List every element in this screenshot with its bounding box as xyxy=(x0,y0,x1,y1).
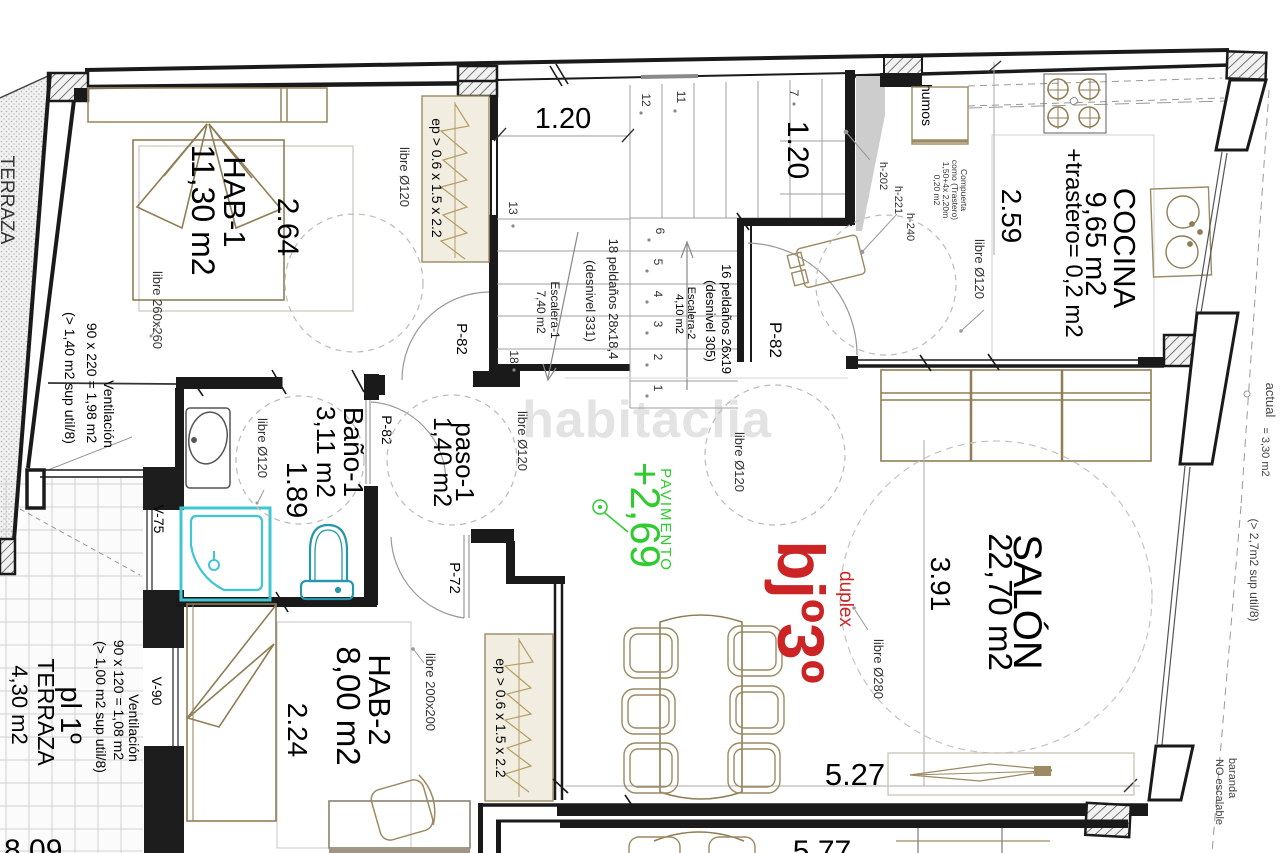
svg-text:Escalera-2: Escalera-2 xyxy=(685,287,697,340)
svg-text:5.77: 5.77 xyxy=(793,835,851,853)
svg-text:4,10 m2: 4,10 m2 xyxy=(673,294,685,334)
svg-text:TERRAZA: TERRAZA xyxy=(33,658,59,766)
svg-text:13: 13 xyxy=(506,201,520,215)
svg-text:8,09: 8,09 xyxy=(4,834,62,853)
svg-text:1: 1 xyxy=(651,385,665,392)
svg-text:libre Ø120: libre Ø120 xyxy=(397,147,412,207)
svg-text:P-82: P-82 xyxy=(766,322,785,358)
svg-text:libre Ø280: libre Ø280 xyxy=(871,639,886,699)
svg-text:1.20: 1.20 xyxy=(535,103,591,135)
svg-text:(> 1,00 m2 sup util/8): (> 1,00 m2 sup util/8) xyxy=(93,641,109,773)
svg-text:libre 200x200: libre 200x200 xyxy=(423,653,438,731)
svg-text:h-240: h-240 xyxy=(904,213,916,241)
svg-text:P-82: P-82 xyxy=(453,323,470,355)
svg-text:5: 5 xyxy=(651,259,665,266)
svg-text:HAB-1: HAB-1 xyxy=(217,156,252,247)
svg-text:4: 4 xyxy=(651,291,665,298)
svg-text:libre 260x260: libre 260x260 xyxy=(150,271,165,349)
svg-text:humos: humos xyxy=(919,84,935,126)
svg-text:h-202: h-202 xyxy=(877,162,889,190)
svg-text:3.91: 3.91 xyxy=(925,557,956,612)
svg-text:duplex: duplex xyxy=(835,571,856,627)
svg-text:6: 6 xyxy=(653,228,667,235)
svg-text:5.27: 5.27 xyxy=(825,757,885,792)
svg-text:90 x 220 = 1,98 m2: 90 x 220 = 1,98 m2 xyxy=(84,323,100,443)
svg-text:libre Ø120: libre Ø120 xyxy=(515,411,530,471)
svg-text:(> 2,7m2 sup util/8): (> 2,7m2 sup util/8) xyxy=(1247,518,1261,621)
svg-text:2.24: 2.24 xyxy=(282,703,313,758)
svg-text:12: 12 xyxy=(639,93,653,107)
svg-text:1,40 m2: 1,40 m2 xyxy=(428,417,456,507)
svg-text:2.59: 2.59 xyxy=(996,189,1027,244)
svg-text:(desnivel 331): (desnivel 331) xyxy=(583,260,598,342)
svg-text:P-72: P-72 xyxy=(446,562,463,594)
svg-text:Baño-1: Baño-1 xyxy=(338,407,369,497)
svg-text:ep > 0.6 x 1.5 x 2.2: ep > 0.6 x 1.5 x 2.2 xyxy=(493,658,509,778)
svg-text:4,30 m2: 4,30 m2 xyxy=(7,665,32,745)
svg-text:7: 7 xyxy=(787,90,801,97)
svg-text:2: 2 xyxy=(651,354,665,361)
svg-text:11,30 m2: 11,30 m2 xyxy=(185,144,221,275)
svg-text:(desnivel 305): (desnivel 305) xyxy=(703,280,718,362)
svg-text:V-75: V-75 xyxy=(151,505,167,534)
svg-text:18 peldaños 28x18,4: 18 peldaños 28x18,4 xyxy=(606,239,621,360)
svg-text:11: 11 xyxy=(674,91,688,104)
svg-text:Ventilación: Ventilación xyxy=(126,694,142,762)
svg-text:(> 1,40 m2 sup util/8): (> 1,40 m2 sup util/8) xyxy=(62,312,78,444)
svg-text:1.89: 1.89 xyxy=(280,462,312,518)
svg-text:P-82: P-82 xyxy=(379,415,395,445)
svg-text:0,20 m2: 0,20 m2 xyxy=(932,175,942,206)
svg-text:NO escalable: NO escalable xyxy=(1213,759,1225,825)
svg-text:libre Ø120: libre Ø120 xyxy=(732,432,747,492)
svg-text:Ventilación: Ventilación xyxy=(101,380,117,448)
svg-text:PAVIMENTO: PAVIMENTO xyxy=(657,468,674,572)
svg-text:8,00 m2: 8,00 m2 xyxy=(330,646,367,765)
svg-text:= 3,30 m2: = 3,30 m2 xyxy=(1259,427,1271,476)
svg-text:actual: actual xyxy=(1263,383,1278,418)
svg-text:7,40 m2: 7,40 m2 xyxy=(534,290,548,334)
svg-text:3: 3 xyxy=(651,321,665,328)
svg-text:+trastero= 0,2 m2: +trastero= 0,2 m2 xyxy=(1060,148,1087,337)
svg-text:3,11 m2: 3,11 m2 xyxy=(311,406,341,498)
svg-text:2.64: 2.64 xyxy=(271,198,304,256)
svg-text:V-90: V-90 xyxy=(149,677,165,706)
svg-text:bjº3º: bjº3º xyxy=(764,540,838,684)
svg-text:ep > 0.6 x 1.5 x 2.2: ep > 0.6 x 1.5 x 2.2 xyxy=(429,118,445,238)
svg-text:TERRAZA: TERRAZA xyxy=(0,156,17,245)
svg-text:Escalera-1: Escalera-1 xyxy=(548,281,562,339)
svg-text:libre Ø120: libre Ø120 xyxy=(972,239,987,299)
svg-text:22,70 m2: 22,70 m2 xyxy=(982,533,1019,671)
svg-text:90 x 120 = 1,08 m2: 90 x 120 = 1,08 m2 xyxy=(111,640,127,760)
svg-text:libre Ø120: libre Ø120 xyxy=(255,418,270,478)
svg-text:h-221: h-221 xyxy=(892,186,904,214)
svg-text:baranda: baranda xyxy=(1226,758,1238,799)
svg-text:1.20: 1.20 xyxy=(781,121,814,179)
svg-text:COCINA: COCINA xyxy=(1107,188,1142,309)
svg-text:16 peldaños 26x19: 16 peldaños 26x19 xyxy=(719,264,734,374)
svg-text:18: 18 xyxy=(507,350,521,364)
